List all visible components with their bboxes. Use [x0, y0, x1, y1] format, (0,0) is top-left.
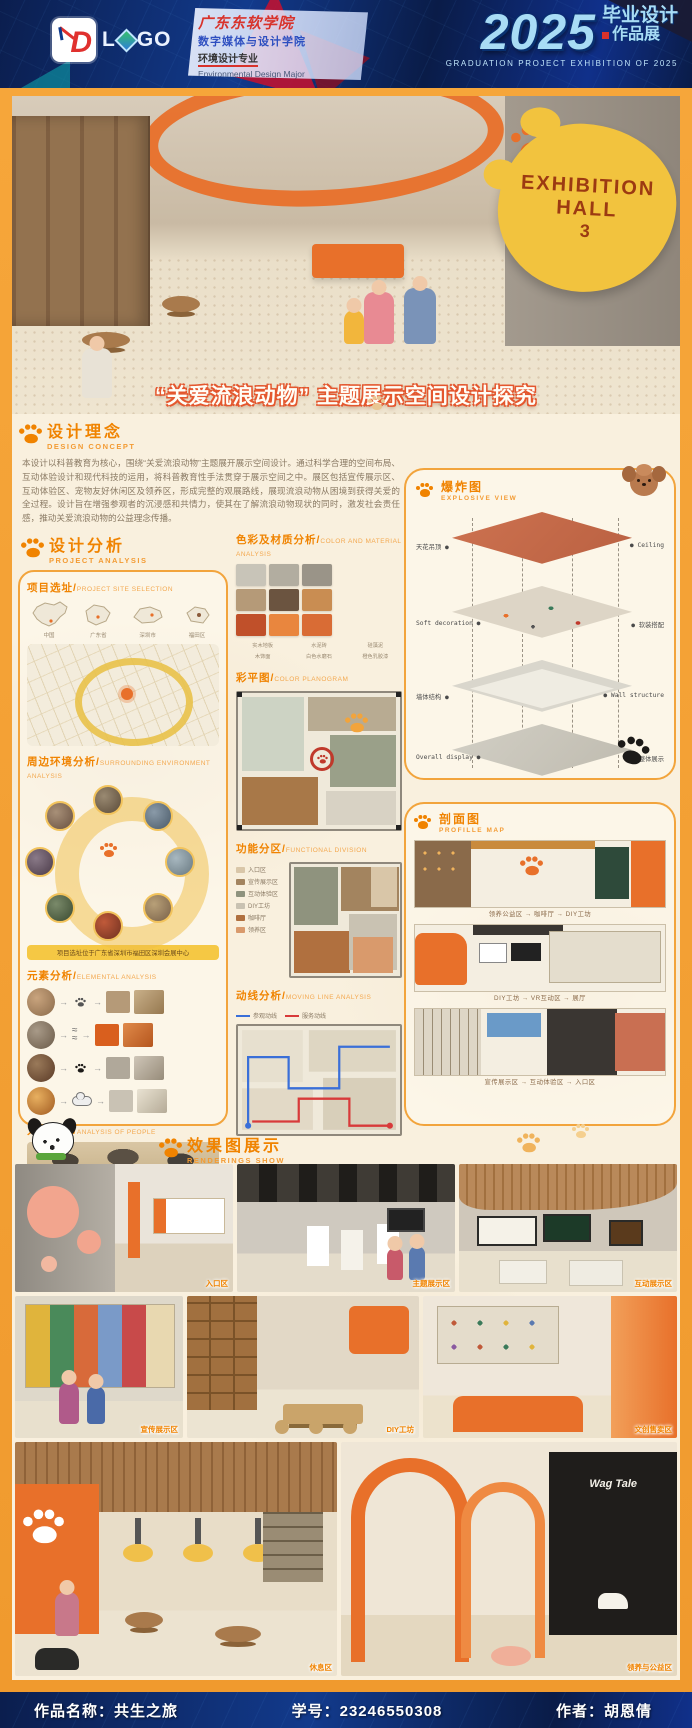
wave-icon: ≈≈	[72, 1027, 78, 1043]
material-sample: 木饰面	[236, 652, 289, 660]
color-plan-header: 彩平图/COLOR PLANOGRAM	[236, 670, 402, 685]
explosive-title-cn: 爆炸图	[441, 478, 517, 495]
analysis-title-cn: 设计分析	[49, 532, 147, 556]
profile-header: 剖面图 PROFILLE MAP	[414, 810, 666, 834]
exhibition-title: 2025 毕业设计 作品展 GRADUATION PROJECT EXHIBIT…	[446, 6, 678, 68]
element-photo	[27, 1021, 55, 1049]
color-floor-plan	[236, 691, 402, 831]
section-elevation	[414, 840, 666, 908]
footer-bar: 作品名称：共生之旅 学号：23246550308 作者：胡恩倩	[0, 1692, 692, 1728]
render-caption: DIY工坊	[386, 1424, 414, 1435]
sign-text: HALL	[556, 196, 618, 222]
render-publicity: 宣传展示区	[15, 1296, 183, 1438]
pendant-lamps	[135, 1518, 141, 1544]
middle-column: 色彩及材质分析/COLOR AND MATERIAL ANALYSIS 实木地板…	[236, 532, 402, 1136]
render-interactive: 互动展示区	[459, 1164, 677, 1292]
paw-icon	[21, 538, 44, 558]
person-illustration	[59, 1382, 79, 1424]
surrounding-photo-node	[165, 847, 195, 877]
section-elevation	[414, 1008, 666, 1076]
render-caption: 互动展示区	[635, 1278, 673, 1289]
function-title-cn: 功能分区	[236, 843, 282, 855]
element-swatch	[106, 991, 130, 1013]
surrounding-photo-node	[143, 801, 173, 831]
color-swatches	[236, 564, 332, 636]
render-caption: 休息区	[310, 1662, 333, 1673]
element-swatch	[109, 1090, 133, 1112]
paw-icon	[317, 754, 328, 763]
element-swatch	[95, 1024, 119, 1046]
circulation-legend: 参观动线 服务动线	[236, 1008, 402, 1020]
renderings-title-cn: 效果图展示	[187, 1132, 285, 1156]
person-illustration	[364, 292, 394, 344]
surrounding-photo-node	[45, 893, 75, 923]
layer-label: Overall display ●	[416, 754, 480, 761]
orange-ceiling-ring	[139, 96, 508, 215]
color-swatch	[269, 614, 299, 636]
render-shop: 文创售卖区	[423, 1296, 677, 1438]
project-analysis-header: 设计分析 PROJECT ANALYSIS	[24, 532, 147, 565]
person-illustration	[409, 1246, 425, 1280]
stools	[275, 1420, 289, 1434]
color-swatch	[236, 614, 266, 636]
render-caption: 领养与公益区	[627, 1662, 672, 1673]
material-sample: 白色水磨石	[292, 652, 345, 660]
sales-counter	[453, 1396, 583, 1432]
orange-wall-panel	[349, 1306, 409, 1354]
circulation-title-cn: 动线分析	[236, 990, 282, 1002]
arrow-icon: →	[93, 997, 102, 1007]
analysis-box: 项目选址/PROJECT SITE SELECTION 中国 广东省 深圳市 福…	[18, 570, 228, 1126]
color-swatch	[302, 589, 332, 611]
material-samples: 实木地板 水泥砖 硅藻泥 木饰面 白色水磨石 橙色乳胶漆	[236, 641, 402, 660]
layer-label: 墙体结构 ●	[416, 692, 449, 701]
paw-icon	[416, 483, 433, 498]
dalmatian-dog-icon	[26, 1118, 78, 1164]
color-material-title-cn: 色彩及材质分析	[236, 534, 317, 546]
profile-title-en: PROFILLE MAP	[439, 827, 505, 834]
paw-wall-art	[23, 1510, 64, 1546]
product-shelf	[437, 1306, 559, 1364]
layer-overall-display	[452, 724, 632, 798]
wall-screen	[543, 1214, 591, 1242]
paw-icon	[159, 1138, 182, 1158]
render-diy-workshop: DIY工坊	[187, 1296, 419, 1438]
dog-silhouette	[35, 1648, 79, 1670]
render-entrance: 入口区	[15, 1164, 233, 1292]
circulation-lines	[238, 1026, 400, 1134]
cloud-icon	[72, 1096, 92, 1106]
bookshelf-wall	[12, 116, 150, 326]
site-title-cn: 项目选址	[27, 582, 73, 594]
layer-label: ● Ceiling	[630, 542, 664, 549]
wall-screen	[477, 1216, 537, 1246]
element-row: → →	[27, 1087, 219, 1115]
arrow-icon: →	[59, 1096, 68, 1106]
color-material-header: 色彩及材质分析/COLOR AND MATERIAL ANALYSIS	[236, 532, 402, 559]
color-swatch	[236, 589, 266, 611]
elements-header: 元素分析/ELEMENTAL ANALYSIS	[27, 968, 219, 983]
paw-print-decoration	[517, 1133, 540, 1153]
wall-artwork	[153, 1198, 225, 1234]
color-swatch	[269, 589, 299, 611]
exhibition-title-cn-top: 毕业设计	[602, 6, 678, 26]
wall-screen	[387, 1208, 425, 1232]
circulation-floor-plan	[236, 1024, 402, 1136]
person-illustration	[387, 1248, 403, 1280]
circulation-title-en: MOVING LINE ANALYSIS	[286, 994, 371, 1001]
sign-text: 3	[579, 220, 592, 242]
major-name: 环境设计专业	[198, 50, 258, 67]
profile-map-box: 剖面图 PROFILLE MAP 领养公益区 → 咖啡厅 → DIY工坊 DIY…	[404, 802, 676, 1126]
render-caption: 主题展示区	[413, 1278, 451, 1289]
site-marker	[121, 688, 133, 700]
element-texture	[134, 1056, 164, 1080]
layer-label: ● Wall structure	[603, 692, 664, 699]
logo-word: L GO	[102, 28, 172, 52]
paw-prints-icon	[75, 1063, 86, 1072]
shelf-wall	[187, 1296, 257, 1410]
element-photo	[27, 988, 55, 1016]
surrounding-photo-node	[93, 785, 123, 815]
surrounding-photo-node	[93, 911, 123, 941]
section-zones: DIY工坊 → VR互动区 → 展厅	[414, 993, 666, 1002]
paw-icon	[19, 424, 42, 444]
paw-icon	[100, 843, 117, 858]
school-logo: D L GO	[52, 18, 172, 62]
paw-wall-art	[27, 1186, 79, 1238]
plan-paw-badge	[310, 747, 334, 771]
logo-mark: D	[52, 18, 96, 62]
dog-logo	[598, 1593, 628, 1609]
paw-floor-sticker	[491, 1646, 531, 1666]
wooden-table	[162, 296, 200, 312]
renderings-header: 效果图展示 RENDERINGS SHOW	[162, 1132, 285, 1165]
person-illustration	[87, 1386, 105, 1424]
work-name: 作品名称：共生之旅	[34, 1700, 178, 1721]
arrow-icon: →	[82, 1030, 91, 1040]
render-caption: 入口区	[206, 1278, 229, 1289]
layer-label: 天花吊顶 ●	[416, 542, 449, 551]
material-sample: 硅藻泥	[349, 641, 402, 649]
elements-title-cn: 元素分析	[27, 970, 73, 982]
wood-slat-ceiling	[459, 1164, 677, 1210]
person-illustration	[55, 1592, 79, 1636]
color-swatch	[236, 564, 266, 586]
logo-diamond-icon	[114, 28, 138, 52]
logo-letter: D	[70, 26, 92, 60]
layer-label: Soft decoration ●	[416, 620, 480, 627]
exhibition-year: 2025	[481, 6, 596, 58]
element-row: → →	[27, 988, 219, 1016]
layer-ceiling	[452, 512, 632, 586]
paw-outline-icon	[75, 997, 86, 1006]
paw-print-decoration	[368, 396, 385, 411]
color-plan-title-en: COLOR PLANOGRAM	[274, 676, 348, 683]
material-sample: 橙色乳胶漆	[349, 652, 402, 660]
people-title-en: ANALYSIS OF PEOPLE	[77, 1129, 156, 1136]
wall-artwork	[609, 1220, 643, 1246]
plan-room	[326, 791, 396, 825]
render-caption: 宣传展示区	[141, 1424, 179, 1435]
explosive-view-box: 爆炸图 EXPLOSIVE VIEW 天花吊顶 ● ● Ceiling Soft…	[404, 468, 676, 780]
render-rest-area: 休息区	[15, 1442, 337, 1676]
element-row: → →	[27, 1054, 219, 1082]
child-illustration	[344, 310, 364, 344]
explosive-title-en: EXPLOSIVE VIEW	[441, 495, 517, 502]
ring-road	[75, 658, 193, 746]
elements-title-en: ELEMENTAL ANALYSIS	[77, 974, 157, 981]
site-title-en: PROJECT SITE SELECTION	[77, 586, 173, 593]
profile-title-cn: 剖面图	[439, 810, 505, 827]
color-swatch	[302, 614, 332, 636]
display-pedestals	[307, 1226, 329, 1266]
arrow-icon: →	[93, 1063, 102, 1073]
lamp-shades	[123, 1544, 153, 1562]
poster-frame: EXHIBITION HALL 3 “关爱流浪动物” 主题展示空间设计探究 设计…	[0, 88, 692, 1692]
element-photo	[27, 1087, 55, 1115]
plan-room	[330, 735, 396, 787]
material-sample: 水泥砖	[292, 641, 345, 649]
exhibition-title-en: GRADUATION PROJECT EXHIBITION OF 2025	[446, 59, 678, 68]
arrow-icon: →	[59, 1030, 68, 1040]
function-title-en: FUNCTIONAL DIVISION	[286, 847, 367, 854]
analysis-title-en: PROJECT ANALYSIS	[49, 556, 147, 565]
paw-print-decoration	[572, 1124, 589, 1139]
arrow-icon: →	[59, 1063, 68, 1073]
arrow-icon: →	[59, 997, 68, 1007]
map-futian: 福田区	[175, 599, 219, 639]
concept-title-en: DESIGN CONCEPT	[47, 442, 136, 451]
element-row: → ≈≈ →	[27, 1021, 219, 1049]
exploded-axonometric	[442, 512, 642, 774]
material-sample: 实木地板	[236, 641, 289, 649]
college-name: 数字媒体与设计学院	[198, 33, 358, 49]
layer-label: ● 软装搭配	[631, 620, 664, 629]
color-plan-title-cn: 彩平图	[236, 672, 271, 684]
element-texture	[137, 1089, 167, 1113]
render-adoption-area: Wag Tale 领养与公益区	[341, 1442, 677, 1676]
section-zones: 宣传展示区 → 互动体验区 → 入口区	[414, 1077, 666, 1086]
function-header: 功能分区/FUNCTIONAL DIVISION	[236, 841, 402, 856]
reception-counter	[312, 244, 404, 278]
surrounding-ring-diagram	[27, 785, 219, 943]
sign-text: EXHIBITION	[520, 171, 655, 201]
element-texture	[123, 1023, 153, 1047]
render-caption: 文创售卖区	[635, 1424, 673, 1435]
display-table	[499, 1260, 547, 1284]
surrounding-photo-node	[25, 847, 55, 877]
storefront-sign: Wag Tale	[549, 1478, 677, 1490]
paw-icon	[414, 815, 431, 830]
site-maps: 中国 广东省 深圳市 福田区	[27, 599, 219, 639]
function-floor-plan	[289, 862, 402, 978]
element-texture	[134, 990, 164, 1014]
bar-shelf	[263, 1512, 323, 1582]
element-swatch	[106, 1057, 130, 1079]
orange-arch	[351, 1458, 469, 1662]
section-zones: 领养公益区 → 咖啡厅 → DIY工坊	[414, 909, 666, 918]
element-photo	[27, 1054, 55, 1082]
plan-room	[242, 777, 318, 825]
arrow-icon: →	[96, 1096, 105, 1106]
function-content: 入口区 宣传展示区 互动体验区 DIY工坊 咖啡厅 领养区	[236, 862, 402, 978]
map-guangdong: 广东省	[76, 599, 120, 639]
work-table	[283, 1404, 363, 1424]
color-swatch	[269, 564, 299, 586]
city-road-map	[27, 644, 219, 746]
paw-print-decoration	[345, 713, 368, 733]
school-info: 广东东软学院 数字媒体与设计学院 环境设计专业 Environmental De…	[188, 8, 368, 80]
site-selection-header: 项目选址/PROJECT SITE SELECTION	[27, 580, 219, 595]
surrounding-photo-node	[45, 801, 75, 831]
surrounding-photo-node	[143, 893, 173, 923]
exhibition-title-cn-bottom: 作品展	[612, 26, 660, 44]
exhibition-banner: D L GO 广东东软学院 数字媒体与设计学院 环境设计专业 Environme…	[0, 0, 692, 88]
student-id: 学号：23246550308	[292, 1700, 443, 1721]
school-name: 广东东软学院	[198, 12, 358, 33]
poster-main-title: “关爱流浪动物” 主题展示空间设计探究	[12, 380, 680, 410]
hero-render: EXHIBITION HALL 3 “关爱流浪动物” 主题展示空间设计探究	[12, 96, 680, 414]
concept-title-cn: 设计理念	[47, 418, 136, 442]
orange-arch	[461, 1482, 545, 1658]
storefront: Wag Tale	[549, 1452, 677, 1635]
section-elevation	[414, 924, 666, 992]
poodle-dog-icon	[622, 464, 666, 504]
display-table	[569, 1260, 623, 1286]
logo-word-right: GO	[137, 28, 172, 52]
paw-icon	[520, 856, 543, 876]
red-square-decoration	[602, 32, 609, 39]
person-illustration	[404, 288, 436, 344]
explosive-header: 爆炸图 EXPLOSIVE VIEW	[416, 478, 517, 502]
map-shenzhen: 深圳市	[126, 599, 170, 639]
author-name: 作者：胡恩倩	[556, 1700, 652, 1721]
map-china: 中国	[27, 599, 71, 639]
function-legend: 入口区 宣传展示区 互动体验区 DIY工坊 咖啡厅 领养区	[236, 862, 284, 978]
surrounding-title-cn: 周边环境分析	[27, 756, 96, 768]
circulation-header: 动线分析/MOVING LINE ANALYSIS	[236, 988, 402, 1003]
color-swatch	[302, 564, 332, 586]
poster-body: EXHIBITION HALL 3 “关爱流浪动物” 主题展示空间设计探究 设计…	[12, 96, 680, 1680]
plan-room	[242, 697, 304, 771]
surrounding-header: 周边环境分析/SURROUNDING ENVIRONMENT ANALYSIS	[27, 754, 219, 781]
render-theme-display: 主题展示区	[237, 1164, 455, 1292]
concept-body-text: 本设计以科普教育为核心，围绕“关爱流浪动物”主题展开展示空间设计。通过科学合理的…	[22, 457, 400, 526]
